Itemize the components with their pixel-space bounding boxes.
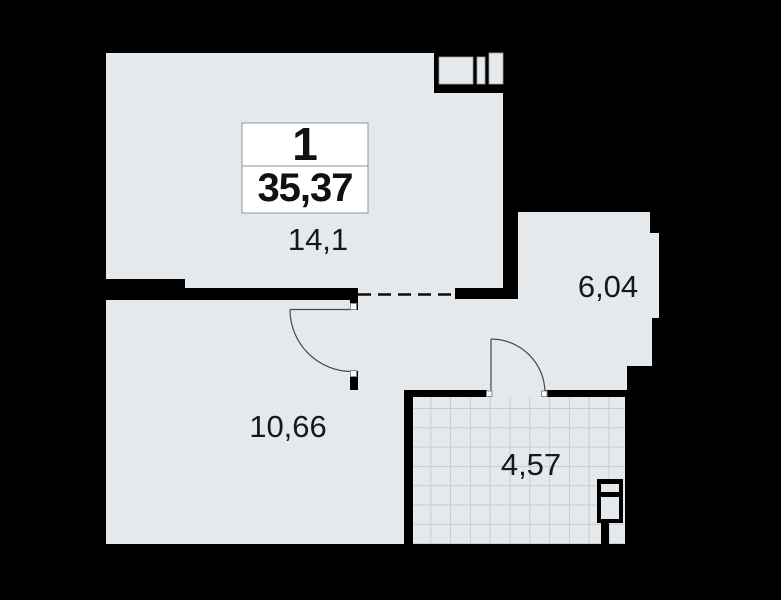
vent-shaft-cell — [477, 57, 485, 84]
plumbing-shaft-cell — [601, 484, 619, 492]
unit-rooms-count: 1 — [292, 118, 318, 170]
vent-shaft-cell — [489, 53, 503, 84]
floor-plan-svg: 1 35,37 14,1 6,04 10,66 4,57 — [0, 0, 781, 600]
door-jamb-marker — [351, 371, 357, 377]
floor-plan-stage: 1 35,37 14,1 6,04 10,66 4,57 — [0, 0, 781, 600]
doorway-kitchen-floor — [350, 310, 359, 371]
door-jamb-marker — [542, 391, 548, 397]
plumbing-shaft-cell — [601, 497, 619, 519]
room-bathroom-area-label: 4,57 — [501, 447, 561, 482]
room-hallway-area-label: 6,04 — [578, 269, 638, 304]
room-living-area-label: 14,1 — [288, 222, 348, 257]
room-kitchen-area-label: 10,66 — [249, 409, 327, 444]
vent-shaft-icon — [434, 52, 508, 93]
unit-total-area: 35,37 — [257, 166, 352, 210]
unit-card: 1 35,37 — [242, 118, 368, 213]
plumbing-shaft-stem — [601, 523, 609, 545]
door-jamb-marker — [487, 391, 493, 397]
door-jamb-marker — [351, 304, 357, 310]
doorway-bathroom-floor — [487, 390, 545, 397]
vent-shaft-cell — [439, 57, 473, 84]
